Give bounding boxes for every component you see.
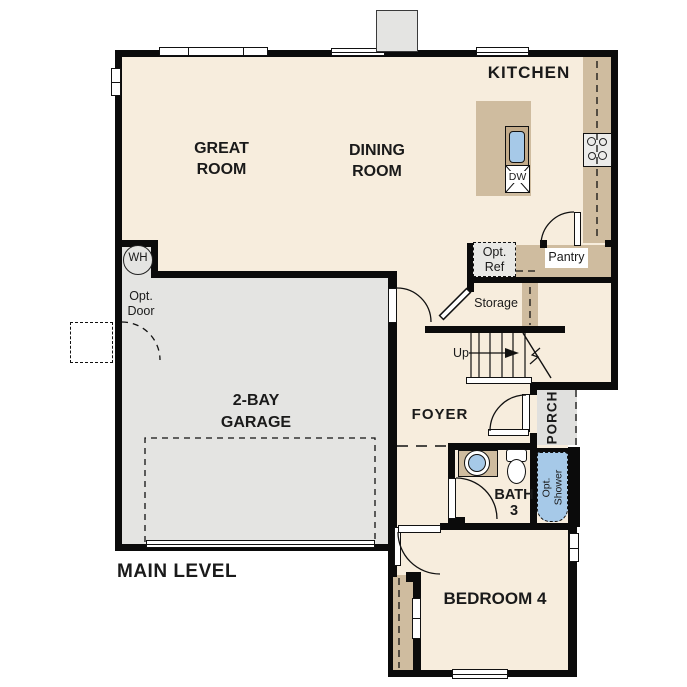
door-leaf [522,394,530,432]
dining-room-line1: DINING [317,140,437,161]
garage-line1: 2-BAY [194,390,318,412]
opt-door-label: Opt. Door [118,289,164,319]
wall-segment [440,523,573,530]
chimney [376,10,418,52]
front-door-threshold [488,429,529,436]
opt-door-landing [70,322,113,363]
opt-shower-line2: Shower [553,469,565,505]
bath-line1: BATH [490,487,538,503]
closet-door-panel [412,618,421,639]
garage-door [146,540,375,548]
dishwasher-text: DW [508,171,528,183]
opt-door-line2: Door [118,304,164,319]
burner-icon [599,138,607,146]
window [111,68,121,96]
dishwasher-label: DW [505,171,530,183]
wall-segment [568,447,580,527]
water-heater-label: WH [123,252,153,264]
island-sink [509,131,525,163]
up-label: Up [447,346,475,360]
wall-segment [406,572,421,582]
door-leaf [448,478,456,519]
great-room-label: GREAT ROOM [159,138,284,180]
opt-shower-text: Opt. Shower [541,469,564,505]
floor-plan: KITCHEN GREAT ROOM DINING ROOM WH Opt. D… [0,0,687,687]
wall-segment [413,638,421,677]
wall-segment [151,271,397,278]
dining-room-line2: ROOM [317,161,437,182]
foyer-label: FOYER [403,406,477,423]
opt-ref-line1: Opt. [473,245,516,260]
wall-segment [605,240,618,247]
kitchen-label: KITCHEN [469,63,589,83]
wall-segment [540,240,547,248]
opt-shower-label: Opt. Shower [537,452,568,522]
wall-segment [532,382,618,390]
door-leaf [388,288,397,323]
pantry-label: Pantry [545,250,588,264]
storage-label: Storage [458,296,534,310]
window [476,47,529,56]
door-leaf [574,212,581,246]
opt-ref-label: Opt. Ref [473,245,516,275]
burner-icon [588,152,596,160]
burner-icon [587,137,596,146]
opt-ref-line2: Ref [473,260,516,275]
wall-segment [467,277,618,283]
burner-icon [598,151,607,160]
dining-room-label: DINING ROOM [317,140,437,182]
great-room-line1: GREAT [159,138,284,159]
ref-side-counter [516,245,541,278]
window [569,533,579,562]
main-level-title: MAIN LEVEL [117,561,317,583]
wall-segment [611,50,618,390]
toilet-bowl [507,459,526,484]
bath-label: BATH 3 [490,487,538,519]
bath-line2: 3 [490,503,538,519]
porch-label: PORCH [537,390,566,445]
opt-shower-line1: Opt. [541,469,553,505]
wall-segment [388,577,393,677]
bedroom-label: BEDROOM 4 [410,589,580,609]
opt-door-line1: Opt. [118,289,164,304]
wall-segment [448,443,455,478]
window [452,669,508,679]
window [159,47,268,56]
stair-landing-edge [466,377,532,384]
garage-label: 2-BAY GARAGE [194,390,318,434]
great-room-line2: ROOM [159,159,284,180]
garage-line2: GARAGE [194,412,318,434]
porch-text: PORCH [544,391,559,445]
vanity-sink [468,454,486,472]
door-leaf [398,525,441,533]
wall-segment [425,326,565,333]
